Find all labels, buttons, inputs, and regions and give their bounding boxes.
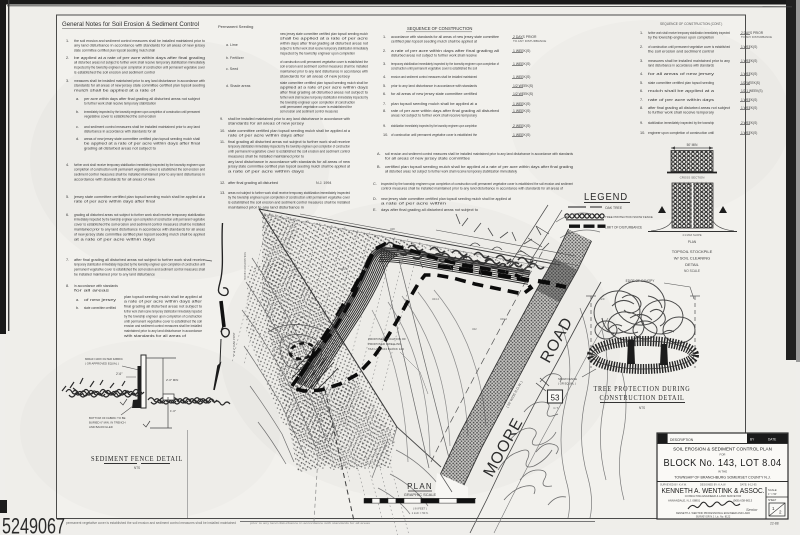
svg-text:mulch shall be applied at a ra: mulch shall be applied at a rate of bbox=[74, 89, 156, 93]
svg-text:Permanent Seeding: Permanent Seeding bbox=[218, 24, 253, 29]
svg-text:SOIL EROSION & SEDIMENT CO: SOIL EROSION & SEDIMENT CONTROL PLAN bbox=[673, 447, 772, 452]
svg-text:1″ = 50′: 1″ = 50′ bbox=[768, 492, 777, 496]
svg-text:350: 350 bbox=[300, 315, 305, 319]
svg-text:standards for all areas of new: standards for all areas of new jersey bbox=[228, 122, 304, 126]
svg-text:rate of per acre within days a: rate of per acre within days after final bbox=[74, 200, 155, 204]
svg-text:1 WEEK(S): 1 WEEK(S) bbox=[741, 72, 757, 76]
svg-text:1 WEEK(S): 1 WEEK(S) bbox=[741, 131, 757, 135]
svg-text:7.: 7. bbox=[640, 98, 643, 102]
svg-text:TREE PROTECTION SNOW FENCE: TREE PROTECTION SNOW FENCE bbox=[605, 215, 653, 219]
svg-text:accordance with standards for: accordance with standards for all areas … bbox=[391, 35, 499, 39]
svg-text:8.: 8. bbox=[66, 284, 69, 288]
svg-text:cover is established the soil: cover is established the soil erosion an… bbox=[74, 223, 205, 227]
svg-text:is established the soil erosio: is established the soil erosion and sedi… bbox=[228, 201, 350, 205]
svg-text:prior to any land disturbance: prior to any land disturbance in accorda… bbox=[250, 521, 371, 525]
svg-text:6.: 6. bbox=[66, 213, 69, 217]
svg-text:1 WEEK(S): 1 WEEK(S) bbox=[741, 98, 757, 102]
svg-text:until permanent vegetative cov: until permanent vegetative cover is esta… bbox=[280, 105, 352, 109]
svg-text:W/ SOIL CLEANING: W/ SOIL CLEANING bbox=[674, 256, 711, 261]
svg-text:maintained prior to any land d: maintained prior to any land disturbance… bbox=[74, 228, 205, 232]
svg-text:1 WEEK(S): 1 WEEK(S) bbox=[513, 133, 530, 137]
svg-text:4.: 4. bbox=[66, 163, 69, 167]
svg-text:is established the soil erosio: is established the soil erosion and sedi… bbox=[74, 71, 155, 75]
svg-text:the township engineer upon com: the township engineer upon completion of… bbox=[280, 100, 355, 104]
svg-text:immediately inspected by the t: immediately inspected by the township en… bbox=[84, 110, 201, 114]
svg-text:measures shall be installed ma: measures shall be installed maintained p… bbox=[648, 59, 730, 63]
svg-text:13.: 13. bbox=[220, 191, 225, 195]
svg-text:TO ANY DISTURBANCE: TO ANY DISTURBANCE bbox=[513, 39, 546, 43]
svg-text:2 WEEK(S): 2 WEEK(S) bbox=[741, 121, 757, 125]
svg-text:1 WEEK(S): 1 WEEK(S) bbox=[741, 45, 757, 49]
svg-text:a.: a. bbox=[76, 298, 79, 302]
svg-text:10.: 10. bbox=[220, 129, 225, 133]
svg-text:1 WEEK(S): 1 WEEK(S) bbox=[741, 106, 757, 110]
svg-text:5249067: 5249067 bbox=[2, 514, 65, 535]
svg-text:of new jersey state committee: of new jersey state committee certified … bbox=[74, 232, 205, 236]
svg-text:rate of per acre within days: rate of per acre within days bbox=[648, 98, 714, 102]
svg-text:CONSTRUCTION DETAIL: CONSTRUCTION DETAIL bbox=[600, 395, 685, 402]
svg-text:B.: B. bbox=[377, 165, 381, 169]
svg-text:1.: 1. bbox=[66, 39, 69, 43]
svg-text:7.: 7. bbox=[383, 102, 386, 106]
svg-text:LIMIT OF DISTURBANCE: LIMIT OF DISTURBANCE bbox=[605, 226, 642, 230]
svg-text:maintained prior to any land d: maintained prior to any land disturbance… bbox=[228, 206, 304, 210]
svg-text:inspected by the township engi: inspected by the township engineer upon … bbox=[74, 66, 206, 70]
svg-text:to further work shall receive: to further work shall receive temporary … bbox=[84, 102, 156, 106]
svg-text:SURVEYOR N.J. Lic. No. 812: SURVEYOR N.J. Lic. No. 8122 bbox=[696, 516, 731, 519]
svg-text:immediately inspected by the t: immediately inspected by the township en… bbox=[74, 218, 205, 222]
svg-text:1 WEEK(S): 1 WEEK(S) bbox=[513, 49, 530, 53]
svg-text:1 WEEK(S): 1 WEEK(S) bbox=[741, 59, 757, 63]
svg-text:1 WEEK(S): 1 WEEK(S) bbox=[513, 109, 530, 113]
svg-text:rate of per acre within days a: rate of per acre within days after bbox=[228, 134, 305, 138]
svg-text:DATE: 6-12-95: DATE: 6-12-95 bbox=[740, 483, 757, 486]
svg-text:DATE: DATE bbox=[768, 438, 776, 442]
svg-text:all disturbed areas not subjec: all disturbed areas not subject to furth… bbox=[385, 170, 517, 174]
svg-text:until permanent vegetative cov: until permanent vegetative cover is esta… bbox=[124, 319, 202, 323]
svg-text:2.: 2. bbox=[640, 45, 643, 49]
svg-text:in accordance with standards: in accordance with standards bbox=[74, 284, 118, 288]
svg-text:be applied at a rate of per ac: be applied at a rate of per acre within … bbox=[84, 142, 200, 146]
svg-text:4.: 4. bbox=[640, 72, 643, 76]
svg-text:a rate of per acre within days: a rate of per acre within days after bbox=[124, 300, 203, 304]
svg-text:for all areas of new jersey st: for all areas of new jersey state commit… bbox=[385, 157, 470, 161]
svg-text:NTS: NTS bbox=[639, 406, 645, 410]
svg-text:by the township engineer upon: by the township engineer upon completion… bbox=[124, 314, 202, 318]
svg-text:all disturbed areas not subjec: all disturbed areas not subject to furth… bbox=[74, 61, 205, 65]
svg-text:1/2 WEEK(S): 1/2 WEEK(S) bbox=[513, 92, 533, 96]
svg-text:a.: a. bbox=[76, 97, 79, 101]
svg-text:d.: d. bbox=[76, 137, 79, 141]
svg-text:A.: A. bbox=[377, 152, 381, 156]
svg-text:1/2 WEEK(S): 1/2 WEEK(S) bbox=[741, 81, 760, 85]
svg-text:GRAPHIC SCALE: GRAPHIC SCALE bbox=[404, 492, 437, 497]
svg-text:D.: D. bbox=[373, 197, 377, 201]
svg-text:for all areas: for all areas bbox=[74, 289, 109, 293]
svg-text:22-88: 22-88 bbox=[770, 522, 779, 526]
svg-text:8.: 8. bbox=[640, 106, 643, 110]
svg-text:maintained prior to any land d: maintained prior to any land disturbance… bbox=[124, 329, 202, 333]
svg-text:PLAN: PLAN bbox=[688, 240, 697, 244]
svg-text:3.: 3. bbox=[640, 59, 643, 63]
svg-text:erosion and sediment control m: erosion and sediment control measures sh… bbox=[391, 75, 477, 79]
svg-text:accordance with standards for: accordance with standards for all areas … bbox=[74, 178, 155, 182]
svg-text:soil erosion and sediment cont: soil erosion and sediment control measur… bbox=[280, 65, 368, 69]
svg-text:KENNETH A. WENTINK & ASSOC: KENNETH A. WENTINK & ASSOC. bbox=[662, 488, 765, 495]
svg-text:mulch shall be applied at a: mulch shall be applied at a bbox=[648, 89, 715, 93]
svg-text:a rate of per acre within: a rate of per acre within bbox=[381, 202, 446, 206]
svg-text:new jersey state committee cer: new jersey state committee certified pla… bbox=[381, 197, 512, 201]
svg-text:by the township engineer upon: by the township engineer upon completion bbox=[648, 36, 714, 40]
svg-text:2′-0″ MIN: 2′-0″ MIN bbox=[166, 378, 178, 382]
svg-text:a rate of per acre within days: a rate of per acre within days after fin… bbox=[391, 49, 499, 53]
svg-text:340.6: 340.6 bbox=[500, 317, 507, 321]
svg-text:3.: 3. bbox=[66, 79, 69, 83]
svg-text:C.T.: C.T. bbox=[553, 406, 559, 410]
svg-text:land disturbance in accordance: land disturbance in accordance with stan… bbox=[648, 64, 714, 68]
svg-text:1.: 1. bbox=[383, 35, 386, 39]
svg-text:subject to further work shall: subject to further work shall receive te… bbox=[280, 47, 368, 51]
svg-text:CROSS SECTION: CROSS SECTION bbox=[680, 176, 705, 180]
svg-text:1 WEEK(S): 1 WEEK(S) bbox=[513, 75, 530, 79]
svg-text:DESCRIPTION: DESCRIPTION bbox=[670, 438, 694, 442]
svg-text:standards for all areas of new: standards for all areas of new jersey st… bbox=[74, 84, 205, 88]
svg-text:6.: 6. bbox=[383, 92, 386, 96]
svg-text:( OR EQUAL ): ( OR EQUAL ) bbox=[558, 382, 576, 386]
svg-text:10.: 10. bbox=[640, 131, 645, 135]
svg-text:temporary stabilization immedi: temporary stabilization immediately insp… bbox=[228, 145, 350, 149]
svg-text:9.: 9. bbox=[220, 117, 223, 121]
svg-text:c.: c. bbox=[76, 125, 79, 129]
svg-text:SHEET: SHEET bbox=[768, 499, 777, 502]
svg-text:areas not subject to further w: areas not subject to further work shall … bbox=[228, 191, 350, 195]
svg-text:completion of construction unt: completion of construction until permane… bbox=[74, 168, 205, 172]
svg-text:(908) 638-8013: (908) 638-8013 bbox=[733, 499, 753, 503]
svg-text:1′-0″: 1′-0″ bbox=[170, 409, 176, 413]
svg-text:50′ MIN: 50′ MIN bbox=[687, 143, 699, 147]
svg-text:maintained prior to any land d: maintained prior to any land disturbance… bbox=[280, 70, 368, 74]
svg-text:TOPSOIL STOCKPILE: TOPSOIL STOCKPILE bbox=[672, 249, 713, 254]
svg-text:SOIL EROSION FENCE: SOIL EROSION FENCE bbox=[243, 252, 247, 280]
svg-text:for all areas of new jersey: for all areas of new jersey bbox=[648, 72, 714, 76]
svg-text:2′-6″: 2′-6″ bbox=[116, 372, 123, 376]
svg-text:state committee certified plan: state committee certified plan topsoil s… bbox=[74, 49, 155, 53]
svg-text:1 WEEK(S): 1 WEEK(S) bbox=[513, 102, 530, 106]
svg-text:SEDIMENT FENCE DETAIL: SEDIMENT FENCE DETAIL bbox=[91, 454, 183, 463]
svg-text:disturbance in accordance with: disturbance in accordance with standards… bbox=[84, 130, 156, 134]
svg-text:General Notes for Soil Er: General Notes for Soil Erosion & Sedimen… bbox=[62, 21, 199, 28]
svg-text:3.: 3. bbox=[383, 62, 386, 66]
svg-text:53: 53 bbox=[551, 394, 560, 403]
svg-text:EDGE OF CANOPY: EDGE OF CANOPY bbox=[626, 279, 656, 283]
svg-text:of construction until permanen: of construction until permanent vegetati… bbox=[648, 45, 730, 49]
svg-text:further work shall receive tem: further work shall receive temporary sta… bbox=[74, 163, 205, 167]
svg-text:state committee certified plan: state committee certified plan topsoil s… bbox=[648, 81, 714, 85]
svg-text:of construction until permanen: of construction until permanent vegetati… bbox=[391, 133, 477, 137]
svg-text:10.: 10. bbox=[383, 133, 388, 137]
svg-text:certified plan topsoil seeding: certified plan topsoil seeding mulch sha… bbox=[391, 40, 478, 44]
svg-text:permanent vegetative cover is: permanent vegetative cover is establishe… bbox=[66, 521, 236, 525]
svg-text:jersey state committee certifi: jersey state committee certified plan to… bbox=[227, 165, 351, 169]
svg-text:at a rate of per acre within d: at a rate of per acre within days bbox=[74, 237, 155, 241]
svg-text:5.: 5. bbox=[383, 84, 386, 88]
svg-text:soil erosion and sediment cont: soil erosion and sediment control measur… bbox=[385, 152, 573, 156]
svg-text:days after final grading all d: days after final grading all disturbed a… bbox=[381, 208, 478, 212]
svg-text:NO SCALE: NO SCALE bbox=[684, 269, 700, 273]
svg-text:CONSULTING ENGINEER & LAND S: CONSULTING ENGINEER & LAND SURVEYOR bbox=[685, 494, 742, 498]
svg-text:further work shall receive tem: further work shall receive temporary sta… bbox=[280, 96, 368, 100]
svg-text:d. Shade areas: d. Shade areas bbox=[226, 84, 251, 88]
svg-text:a. Lime: a. Lime bbox=[226, 43, 238, 47]
svg-text:N.J. 1994: N.J. 1994 bbox=[316, 181, 331, 185]
svg-text:BOTTOM OF FABRIC TO BE: BOTTOM OF FABRIC TO BE bbox=[89, 416, 126, 420]
svg-text:2″ X 2″ OAK POST: 2″ X 2″ OAK POST bbox=[232, 332, 236, 356]
svg-text:after final grading all distur: after final grading all disturbed areas … bbox=[74, 258, 205, 262]
svg-text:5.: 5. bbox=[640, 81, 643, 85]
svg-text:any land disturbance in accord: any land disturbance in accordance with … bbox=[74, 44, 205, 48]
svg-text:1/2,1 WEEK(S): 1/2,1 WEEK(S) bbox=[741, 89, 763, 93]
svg-text:IN THE: IN THE bbox=[718, 470, 727, 474]
svg-text:shall be installed maintained: shall be installed maintained prior to a… bbox=[228, 117, 350, 121]
svg-text:OAK TREE: OAK TREE bbox=[605, 206, 623, 210]
svg-text:TO ANY DISTURBANCE: TO ANY DISTURBANCE bbox=[741, 35, 772, 39]
svg-text:any land disturbance in accord: any land disturbance in accordance with … bbox=[228, 160, 350, 164]
svg-text:( IN FEET ): ( IN FEET ) bbox=[413, 507, 427, 511]
svg-text:344.2: 344.2 bbox=[432, 297, 439, 301]
svg-text:inspected by the township engi: inspected by the township engineer upon … bbox=[280, 51, 355, 55]
svg-text:SEQUENCE OF CONSTRUCTION: SEQUENCE OF CONSTRUCTION bbox=[407, 26, 472, 31]
svg-text:state committee certified plan: state committee certified plan topsoil s… bbox=[228, 129, 351, 133]
svg-text:temporary stabilization immedi: temporary stabilization immediately insp… bbox=[74, 263, 205, 267]
svg-text:of new jersey: of new jersey bbox=[84, 298, 116, 302]
svg-text:346.5: 346.5 bbox=[340, 267, 347, 271]
svg-text:b. Fertilizer: b. Fertilizer bbox=[226, 56, 245, 60]
svg-text:and sediment control measures: and sediment control measures shall be i… bbox=[84, 125, 200, 129]
svg-text:sediment control measures shal: sediment control measures shall be insta… bbox=[74, 173, 205, 177]
svg-text:DETAIL: DETAIL bbox=[685, 262, 699, 267]
svg-text:TREE PROTECTION DURING: TREE PROTECTION DURING bbox=[594, 386, 691, 393]
svg-text:plan topsoil seeding mulch sha: plan topsoil seeding mulch shall be appl… bbox=[124, 295, 203, 299]
svg-text:1/2 WEEK(S): 1/2 WEEK(S) bbox=[513, 84, 533, 88]
svg-text:disturbed areas not subject to: disturbed areas not subject to further w… bbox=[391, 54, 477, 58]
svg-text:BLOCK No. 143, LOT 8.04: BLOCK No. 143, LOT 8.04 bbox=[664, 457, 782, 469]
svg-text:TAX LOT 8.04 BLOCK 143: TAX LOT 8.04 BLOCK 143 bbox=[368, 347, 404, 351]
svg-text:4.: 4. bbox=[383, 75, 386, 79]
svg-text:PROPOSED LOCATION OF: PROPOSED LOCATION OF bbox=[368, 337, 406, 341]
svg-text:2 WEEK(S): 2 WEEK(S) bbox=[513, 124, 530, 128]
svg-text:SCALE:: SCALE: bbox=[768, 488, 778, 492]
svg-text:be installed maintained prior: be installed maintained prior to any lan… bbox=[74, 273, 155, 277]
svg-text:DESIGNED BY: K.A.W.: DESIGNED BY: K.A.W. bbox=[700, 483, 726, 486]
svg-text:ANNANDALE, N.J. 08801: ANNANDALE, N.J. 08801 bbox=[668, 499, 701, 503]
svg-text:2.: 2. bbox=[383, 49, 386, 53]
svg-text:the soil erosion and sediment: the soil erosion and sediment control bbox=[648, 50, 714, 54]
svg-text:areas not subject to further w: areas not subject to further work shall … bbox=[391, 114, 477, 118]
svg-text:vegetative cover is establishe: vegetative cover is established the soil… bbox=[84, 115, 156, 119]
svg-text:348: 348 bbox=[390, 227, 395, 231]
svg-text:after final grading all distur: after final grading all disturbed areas … bbox=[648, 106, 731, 110]
svg-text:rate of per acre within days a: rate of per acre within days after final… bbox=[391, 109, 499, 113]
svg-text:a rate of per acre within days: a rate of per acre within days bbox=[228, 170, 304, 174]
svg-text:final grading all disturbed ar: final grading all disturbed areas not su… bbox=[228, 140, 350, 144]
svg-text:LEGEND: LEGEND bbox=[584, 191, 628, 203]
svg-text:8.: 8. bbox=[383, 109, 386, 113]
svg-text:temporary stabilization immedi: temporary stabilization immediately insp… bbox=[391, 62, 500, 66]
svg-text:until permanent vegetative cov: until permanent vegetative cover is esta… bbox=[228, 150, 350, 154]
svg-text:b.: b. bbox=[76, 306, 79, 310]
svg-text:stabilization immediately insp: stabilization immediately inspected by t… bbox=[391, 124, 477, 128]
svg-text:after final grading all distur: after final grading all disturbed areas … bbox=[280, 91, 368, 95]
svg-text:FOR: FOR bbox=[720, 453, 726, 457]
svg-text:after final grading all distur: after final grading all disturbed bbox=[228, 181, 278, 185]
svg-text:by the township engineer upon: by the township engineer upon completion… bbox=[228, 196, 351, 200]
svg-text:2.: 2. bbox=[66, 56, 69, 60]
svg-text:PROPOSED DWELLING: PROPOSED DWELLING bbox=[368, 342, 402, 346]
svg-text:certified plan topsoil seeding: certified plan topsoil seeding mulch sha… bbox=[385, 165, 573, 169]
svg-text:AND BACKFILLED: AND BACKFILLED bbox=[89, 425, 113, 429]
svg-text:MIRAFI 100X FILTER FABRIC: MIRAFI 100X FILTER FABRIC bbox=[85, 357, 123, 361]
svg-text:applied at a rate of per acre: applied at a rate of per acre within day… bbox=[280, 86, 368, 90]
svg-text:erosion and sediment control m: erosion and sediment control measures sh… bbox=[124, 324, 202, 328]
svg-text:standards for all areas of new: standards for all areas of new jersey bbox=[280, 75, 350, 79]
svg-text:within days after final gradin: within days after final grading all dist… bbox=[280, 42, 369, 46]
svg-text:SURVEYED BY: K.A.W.: SURVEYED BY: K.A.W. bbox=[660, 483, 687, 486]
svg-text:BURIED 6″ MIN. IN TRENCH: BURIED 6″ MIN. IN TRENCH bbox=[89, 421, 126, 425]
svg-text:plan topsoil seeding mulch sha: plan topsoil seeding mulch shall be appl… bbox=[391, 102, 478, 106]
svg-text:jersey state committee certifi: jersey state committee certified plan to… bbox=[73, 195, 206, 199]
svg-text:prior to any land disturbance: prior to any land disturbance in accorda… bbox=[391, 84, 477, 88]
svg-text:b.: b. bbox=[76, 110, 79, 114]
svg-text:PLAN: PLAN bbox=[407, 482, 433, 491]
svg-text:with standards for all areas o: with standards for all areas of bbox=[124, 334, 187, 338]
svg-text:engineer upon completion of co: engineer upon completion of construction… bbox=[648, 131, 714, 135]
svg-text:to further work shall receive: to further work shall receive temporary bbox=[648, 111, 714, 115]
svg-text:TOWNSHIP OF BRANCHBURG SOM: TOWNSHIP OF BRANCHBURG SOMERSET COUNTY N… bbox=[674, 476, 770, 480]
svg-text:inspected by the township engi: inspected by the township engineer upon … bbox=[381, 182, 574, 186]
svg-text:new jersey state committee cer: new jersey state committee certified pla… bbox=[280, 32, 368, 36]
svg-text:further work shall receive tem: further work shall receive temporary sta… bbox=[124, 310, 202, 314]
svg-text:of construction until permanen: of construction until permanent vegetati… bbox=[280, 60, 368, 64]
svg-text:12.: 12. bbox=[220, 181, 225, 185]
svg-text:per acre within days after fin: per acre within days after final grading… bbox=[84, 97, 201, 101]
svg-text:areas of new jersey state comm: areas of new jersey state committee cert… bbox=[84, 137, 200, 141]
svg-text:measures shall be installed ma: measures shall be installed maintained p… bbox=[74, 79, 205, 83]
svg-text:for all areas of new jersey st: for all areas of new jersey state commit… bbox=[391, 92, 477, 96]
svg-text:1 WEEK(S): 1 WEEK(S) bbox=[513, 62, 530, 66]
svg-text:6.: 6. bbox=[640, 89, 643, 93]
svg-text:C.: C. bbox=[373, 182, 377, 186]
svg-text:7.: 7. bbox=[66, 258, 69, 262]
svg-text:9.: 9. bbox=[383, 124, 386, 128]
svg-text:stabilization immediately insp: stabilization immediately inspected by t… bbox=[648, 121, 714, 125]
svg-text:grading all disturbed areas no: grading all disturbed areas not subject … bbox=[74, 213, 205, 217]
svg-text:SNOW FENCE: SNOW FENCE bbox=[558, 377, 577, 381]
svg-text:1.: 1. bbox=[640, 31, 643, 35]
svg-text:9.: 9. bbox=[640, 121, 643, 125]
svg-text:NTS: NTS bbox=[134, 466, 140, 470]
svg-text:c. Seed: c. Seed bbox=[226, 67, 238, 71]
svg-text:shall be applied at a rate of: shall be applied at a rate of per acre bbox=[280, 37, 368, 41]
svg-text:final grading all disturbed ar: final grading all disturbed areas not su… bbox=[124, 305, 202, 309]
svg-text:5.: 5. bbox=[66, 195, 69, 199]
svg-text:permanent vegetative cover is: permanent vegetative cover is establishe… bbox=[74, 268, 205, 272]
svg-text:grading all disturbed areas no: grading all disturbed areas not subject … bbox=[84, 147, 156, 151]
svg-text:state committee certified plan: state committee certified plan topsoil s… bbox=[280, 81, 368, 85]
svg-text:state committee certified: state committee certified bbox=[84, 306, 116, 310]
svg-text:the soil erosion and sediment: the soil erosion and sediment control me… bbox=[74, 39, 205, 43]
svg-text:11.: 11. bbox=[220, 140, 225, 144]
svg-text:4:1 MAX SLOPE: 4:1 MAX SLOPE bbox=[682, 233, 702, 237]
svg-text:SEQUENCE OF CONSTRUCTION (C: SEQUENCE OF CONSTRUCTION (CONT.) bbox=[660, 22, 722, 26]
svg-text:measures shall be installed ma: measures shall be installed maintained p… bbox=[228, 155, 304, 159]
svg-text:construction until permanent v: construction until permanent vegetative … bbox=[391, 67, 477, 71]
svg-text:( OR APPROVED EQUAL ): ( OR APPROVED EQUAL ) bbox=[85, 362, 119, 366]
svg-text:E.: E. bbox=[373, 208, 377, 212]
svg-text:1 inch = 50 ft.: 1 inch = 50 ft. bbox=[412, 511, 429, 515]
svg-text:control measures shall be inst: control measures shall be installed main… bbox=[381, 187, 564, 191]
svg-text:further work shall receive tem: further work shall receive temporary sta… bbox=[648, 31, 730, 35]
svg-text:be applied at a rate of per ac: be applied at a rate of per acre within … bbox=[74, 56, 205, 60]
svg-text:342: 342 bbox=[472, 327, 477, 331]
svg-text:soil erosion and sediment cont: soil erosion and sediment control measur… bbox=[280, 110, 338, 114]
